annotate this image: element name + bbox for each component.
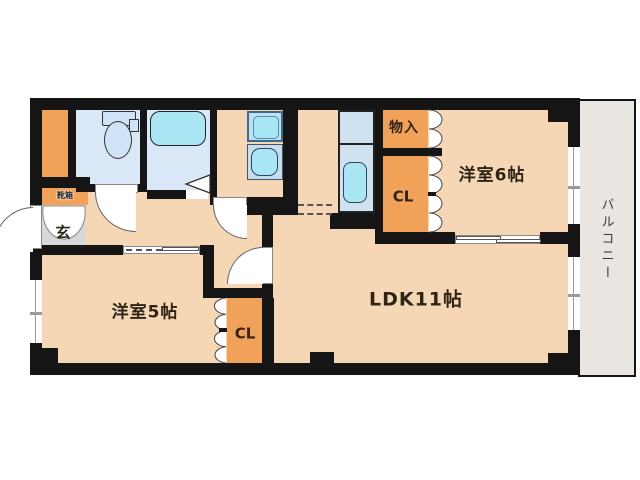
- bathtub-icon: [150, 111, 206, 146]
- open-passage-dashed: [298, 204, 332, 215]
- bedroom5-label: 洋室5帖: [112, 305, 179, 322]
- pillar: [548, 103, 580, 122]
- kitchen-sink-icon: [343, 162, 367, 203]
- bedroom6-label: 洋室6帖: [459, 168, 526, 185]
- balcony-label: バルコニー: [600, 198, 613, 283]
- wall: [203, 250, 214, 288]
- wall: [383, 148, 442, 156]
- entrance-label: 玄: [55, 226, 70, 241]
- accordion-door-storage: [428, 110, 443, 148]
- sliding-door-bedroom5: [123, 246, 200, 254]
- floor-plan: バルコニー: [0, 0, 640, 480]
- wall: [76, 184, 95, 192]
- wall: [140, 110, 147, 192]
- wall: [200, 245, 214, 255]
- entrance-door-swing: [0, 207, 33, 252]
- wall: [30, 98, 580, 110]
- window-west: [30, 278, 42, 345]
- wall: [283, 110, 298, 207]
- door-stop-tick: [428, 192, 436, 196]
- storage-label: 物入: [389, 121, 419, 135]
- pillar: [310, 352, 334, 375]
- wall: [30, 363, 580, 375]
- closet-west-label: CL: [235, 327, 256, 342]
- entrance-closet-strip: [42, 110, 68, 177]
- ldk-label: LDK11帖: [369, 291, 463, 310]
- wall: [540, 232, 580, 244]
- closet-east-label: CL: [393, 190, 414, 205]
- wall: [262, 215, 273, 247]
- pillar: [548, 353, 580, 375]
- ldk-door: [262, 247, 273, 284]
- counter-divider: [340, 143, 373, 145]
- door-stop-tick: [219, 328, 227, 332]
- toilet-bowl-icon: [104, 121, 132, 159]
- wall: [375, 232, 455, 244]
- washing-machine-icon: [247, 111, 283, 142]
- wall: [375, 110, 383, 232]
- wall: [147, 190, 186, 199]
- wall: [262, 298, 274, 363]
- toilet-flush-icon: [129, 119, 139, 132]
- sliding-door-bedroom6: [455, 235, 540, 244]
- window-east-bedroom6: [568, 145, 580, 226]
- window-east-ldk: [568, 255, 580, 332]
- washbasin-bowl-icon: [251, 148, 278, 176]
- wall: [30, 98, 42, 205]
- shoe-cabinet-label: 靴箱: [57, 192, 73, 200]
- bathroom-folding-door-icon: [184, 172, 212, 196]
- pillar: [30, 348, 58, 375]
- wall: [30, 245, 123, 255]
- wall: [203, 288, 273, 298]
